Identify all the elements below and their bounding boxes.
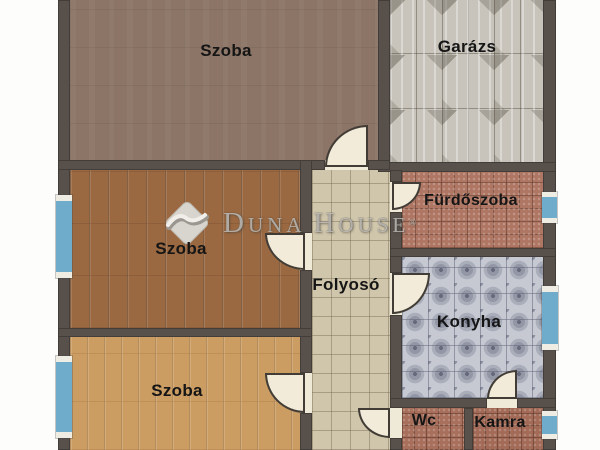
duna-house-watermark: DunaHouse® xyxy=(223,207,416,240)
wall-folyoso-right-a xyxy=(390,170,402,182)
wall-outer-right xyxy=(543,0,556,450)
wall-furdo-konyha xyxy=(390,248,556,257)
room-label-szoba-mid: Szoba xyxy=(155,239,207,259)
room-furdoszoba-floor xyxy=(402,172,543,248)
room-label-furdoszoba: Fürdőszoba xyxy=(424,192,518,210)
wall-folyoso-right-d xyxy=(390,438,402,450)
room-label-kamra: Kamra xyxy=(474,414,525,432)
wall-folyoso-left-b xyxy=(300,270,312,373)
threshold-wc-door xyxy=(390,408,402,438)
room-label-szoba-top: Szoba xyxy=(200,41,252,61)
window-right-konyha xyxy=(542,286,558,350)
wall-szoba-mid-bottom xyxy=(58,328,312,337)
wall-szoba-garazs xyxy=(378,0,390,172)
threshold-kamra-door xyxy=(487,398,517,408)
wall-konyha-bottom-b xyxy=(517,398,556,408)
room-szoba-top-floor xyxy=(70,0,378,162)
room-label-folyoso: Folyosó xyxy=(312,275,379,295)
wall-folyoso-left-c xyxy=(300,413,312,450)
wall-folyoso-right-c xyxy=(390,315,402,408)
watermark-word-house: House xyxy=(313,207,409,240)
floor-plan: DunaHouse® Szoba Garázs Szoba Fürdőszoba… xyxy=(0,0,600,450)
window-right-kamra xyxy=(542,411,557,439)
window-left-szoba-bottom xyxy=(56,356,72,438)
room-label-garazs: Garázs xyxy=(438,37,497,57)
room-label-szoba-bottom: Szoba xyxy=(151,381,203,401)
window-right-furdoszoba xyxy=(542,192,557,223)
wall-szoba-top-bottom-b xyxy=(368,160,390,170)
wall-konyha-bottom-a xyxy=(390,398,487,408)
watermark-word-duna: Duna xyxy=(223,207,305,240)
wall-garazs-bottom xyxy=(378,162,556,172)
room-label-konyha: Konyha xyxy=(437,312,501,332)
wall-wc-kamra xyxy=(464,408,473,450)
window-left-szoba-mid xyxy=(56,195,72,278)
wall-szoba-top-bottom-a xyxy=(58,160,325,170)
room-garazs-floor xyxy=(390,0,543,164)
room-label-wc: Wc xyxy=(412,412,437,430)
registered-mark: ® xyxy=(409,218,416,228)
